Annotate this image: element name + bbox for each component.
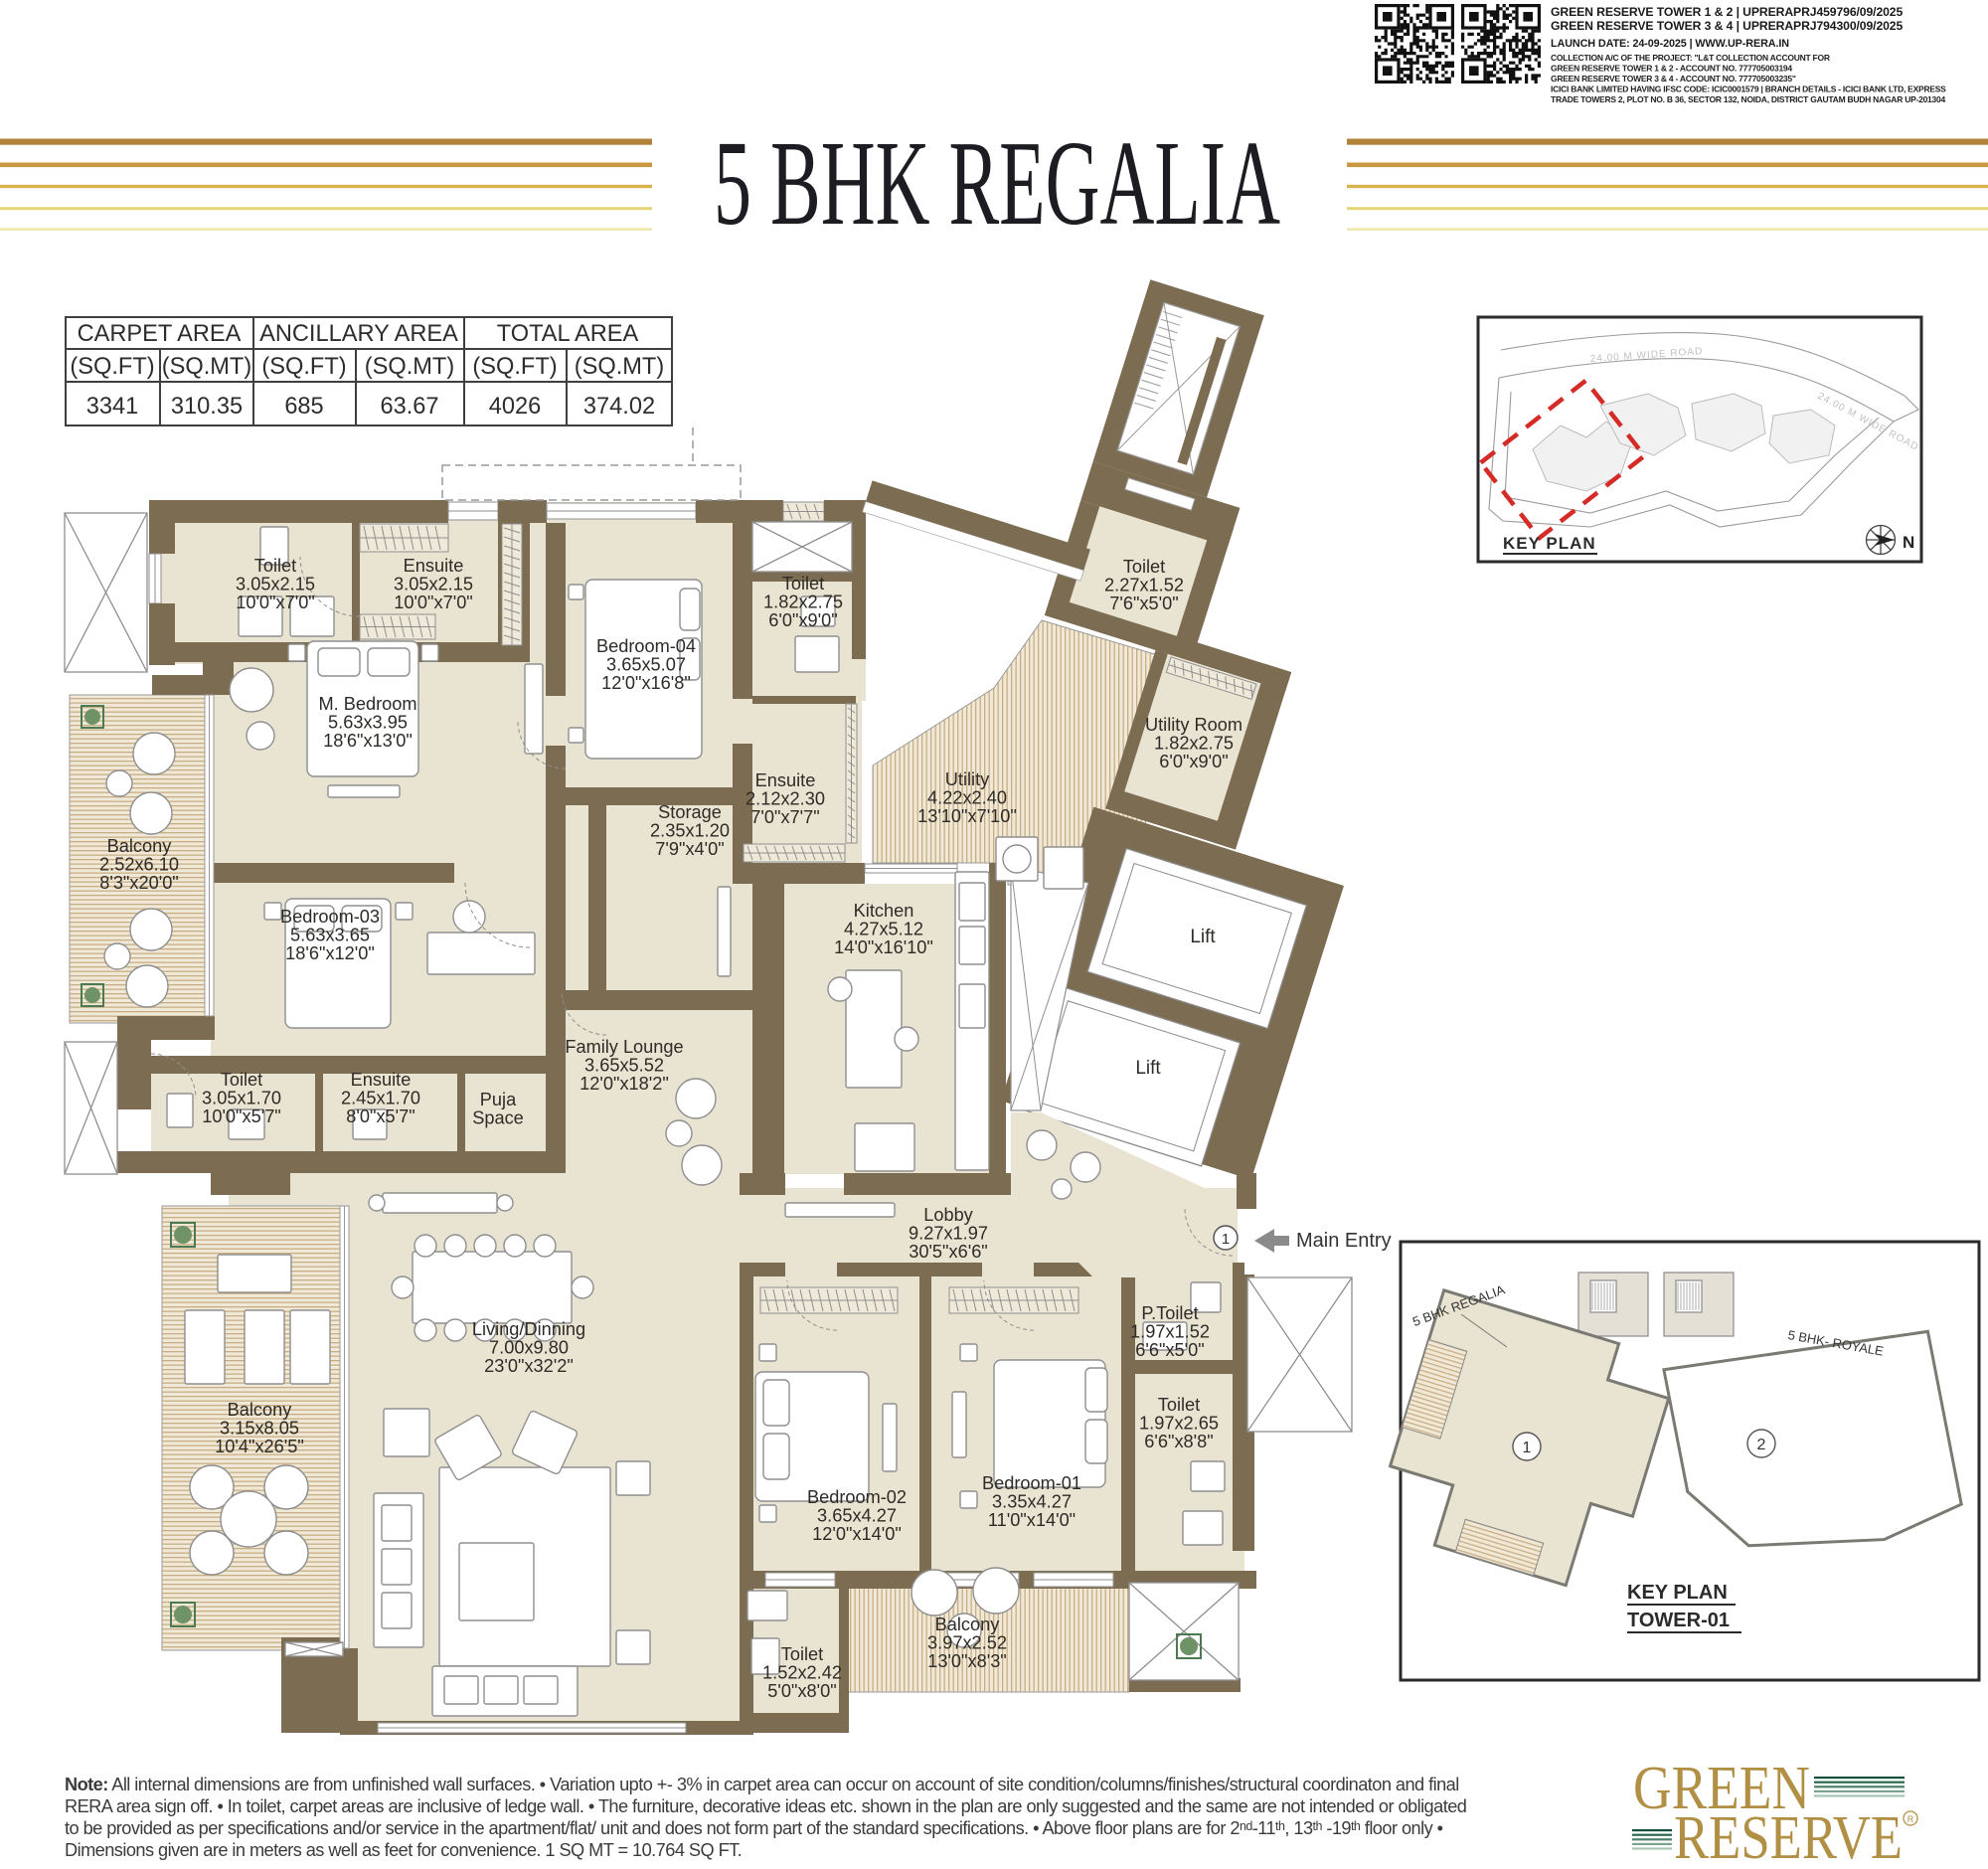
svg-text:ICICI BANK LIMITED HAVING IFSC: ICICI BANK LIMITED HAVING IFSC CODE: ICI… [1551,85,1946,94]
svg-text:Bedroom-043.65x5.0712'0"x16'8": Bedroom-043.65x5.0712'0"x16'8" [596,636,696,693]
svg-text:310.35: 310.35 [171,394,243,420]
svg-text:Utility Room1.82x2.756'0"x9'0": Utility Room1.82x2.756'0"x9'0" [1145,715,1242,771]
svg-text:TRADE TOWERS 2, PLOT NO. B 36,: TRADE TOWERS 2, PLOT NO. B 36, SECTOR 13… [1551,94,1945,104]
svg-text:COLLECTION A/C OF THE PROJECT:: COLLECTION A/C OF THE PROJECT: "L&T COLL… [1551,53,1830,63]
svg-text:1: 1 [1222,1231,1230,1248]
svg-text:Ensuite3.05x2.1510'0"x7'0": Ensuite3.05x2.1510'0"x7'0" [394,556,473,612]
svg-text:(SQ.MT): (SQ.MT) [162,354,251,380]
svg-text:GREEN RESERVE TOWER 1 & 2 | UP: GREEN RESERVE TOWER 1 & 2 | UPRERAPRJ459… [1551,5,1903,19]
svg-text:TOTAL AREA: TOTAL AREA [497,321,639,347]
svg-text:N: N [1903,533,1914,552]
svg-text:RESERVE: RESERVE [1674,1804,1903,1864]
svg-text:(SQ.FT): (SQ.FT) [70,354,154,380]
svg-text:Bedroom-023.65x4.2712'0"x14'0": Bedroom-023.65x4.2712'0"x14'0" [807,1487,907,1544]
svg-text:to be provided as per specific: to be provided as per specifications and… [65,1818,1443,1838]
svg-text:374.02: 374.02 [583,394,655,420]
svg-text:KEY PLAN: KEY PLAN [1503,534,1596,553]
svg-text:GREEN RESERVE TOWER 3 & 4 | UP: GREEN RESERVE TOWER 3 & 4 | UPRERAPRJ794… [1551,19,1903,33]
svg-text:Main Entry: Main Entry [1296,1230,1392,1252]
svg-text:Balcony3.15x8.0510'4"x26'5": Balcony3.15x8.0510'4"x26'5" [215,1400,304,1456]
svg-text:ANCILLARY AREA: ANCILLARY AREA [259,321,458,347]
svg-text:R: R [1907,1814,1914,1824]
svg-text:Lift: Lift [1190,927,1216,947]
svg-text:3341: 3341 [86,394,139,420]
svg-text:P.Toilet1.97x1.526'6"x5'0": P.Toilet1.97x1.526'6"x5'0" [1130,1303,1210,1360]
svg-text:KEY PLAN: KEY PLAN [1627,1582,1728,1604]
svg-text:Ensuite2.12x2.307'0"x7'7": Ensuite2.12x2.307'0"x7'7" [745,770,825,827]
svg-text:Storage2.35x1.207'9"x4'0": Storage2.35x1.207'9"x4'0" [650,802,730,859]
svg-text:PujaSpace: PujaSpace [472,1090,524,1128]
svg-text:GREEN RESERVE TOWER 1 & 2 - AC: GREEN RESERVE TOWER 1 & 2 - ACCOUNT NO. … [1551,64,1792,74]
svg-text:TOWER-01: TOWER-01 [1627,1610,1730,1631]
svg-text:(SQ.FT): (SQ.FT) [261,354,346,380]
svg-text:Note: All internal dimensions: Note: All internal dimensions are from u… [65,1775,1459,1794]
svg-text:1: 1 [1523,1440,1532,1456]
svg-text:(SQ.MT): (SQ.MT) [575,354,664,380]
svg-text:Bedroom-035.63x3.6518'6"x12'0": Bedroom-035.63x3.6518'6"x12'0" [280,907,380,963]
svg-text:M. Bedroom5.63x3.9518'6"x13'0": M. Bedroom5.63x3.9518'6"x13'0" [318,694,416,751]
svg-text:(SQ.MT): (SQ.MT) [365,354,454,380]
svg-text:Bedroom-013.35x4.2711'0"x14'0": Bedroom-013.35x4.2711'0"x14'0" [982,1473,1081,1530]
svg-text:Dimensions given are in meters: Dimensions given are in meters as well a… [65,1840,742,1860]
svg-text:LAUNCH DATE: 24-09-2025 | WWW.: LAUNCH DATE: 24-09-2025 | WWW.UP-RERA.IN [1551,38,1789,50]
svg-text:(SQ.FT): (SQ.FT) [472,354,557,380]
svg-text:63.67: 63.67 [380,394,438,420]
svg-text:Balcony2.52x6.108'3"x20'0": Balcony2.52x6.108'3"x20'0" [99,836,179,893]
svg-text:GREEN RESERVE TOWER 3 & 4 - AC: GREEN RESERVE TOWER 3 & 4 - ACCOUNT NO. … [1551,74,1796,84]
svg-text:685: 685 [284,394,323,420]
svg-text:RERA area sign off. • In toile: RERA area sign off. • In toilet, carpet … [65,1796,1466,1816]
svg-text:2: 2 [1757,1437,1766,1453]
svg-text:Balcony3.97x2.5213'0"x8'3": Balcony3.97x2.5213'0"x8'3" [927,1614,1007,1671]
svg-text:CARPET AREA: CARPET AREA [78,321,242,347]
svg-text:5 BHK REGALIA: 5 BHK REGALIA [714,116,1280,251]
svg-text:4026: 4026 [489,394,542,420]
svg-text:Ensuite2.45x1.708'0"x5'7": Ensuite2.45x1.708'0"x5'7" [341,1070,420,1126]
svg-text:Lift: Lift [1135,1058,1161,1079]
